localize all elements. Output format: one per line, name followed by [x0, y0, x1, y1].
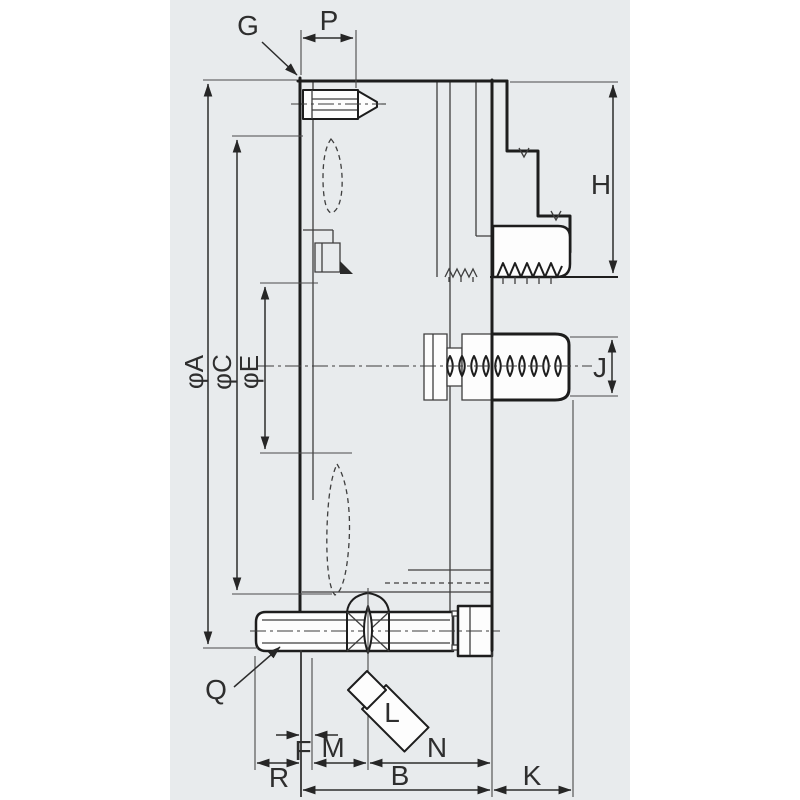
dim-label-n: N [427, 732, 447, 763]
dim-label-phi-e: φE [234, 355, 264, 389]
dim-label-phi-c: φC [207, 354, 237, 390]
dim-label-j: J [593, 352, 607, 383]
dim-label-g: G [237, 10, 259, 41]
dim-label-h: H [591, 169, 611, 200]
dim-label-q: Q [205, 674, 227, 705]
dim-label-b: B [391, 760, 410, 791]
jaw-base-block [493, 226, 570, 277]
dim-label-l: L [384, 697, 400, 728]
mounting-lug [250, 606, 500, 656]
dim-label-p: P [320, 5, 339, 36]
screenshot-root: G P H J K L N M F R B Q φA φC φE [0, 0, 800, 800]
dim-label-r: R [269, 762, 289, 793]
dim-label-f: F [294, 735, 311, 766]
screw-head [424, 334, 447, 400]
technical-drawing: G P H J K L N M F R B Q φA φC φE [0, 0, 800, 800]
dim-label-phi-a: φA [179, 354, 209, 389]
dim-label-m: M [321, 732, 344, 763]
dim-label-k: K [523, 760, 542, 791]
